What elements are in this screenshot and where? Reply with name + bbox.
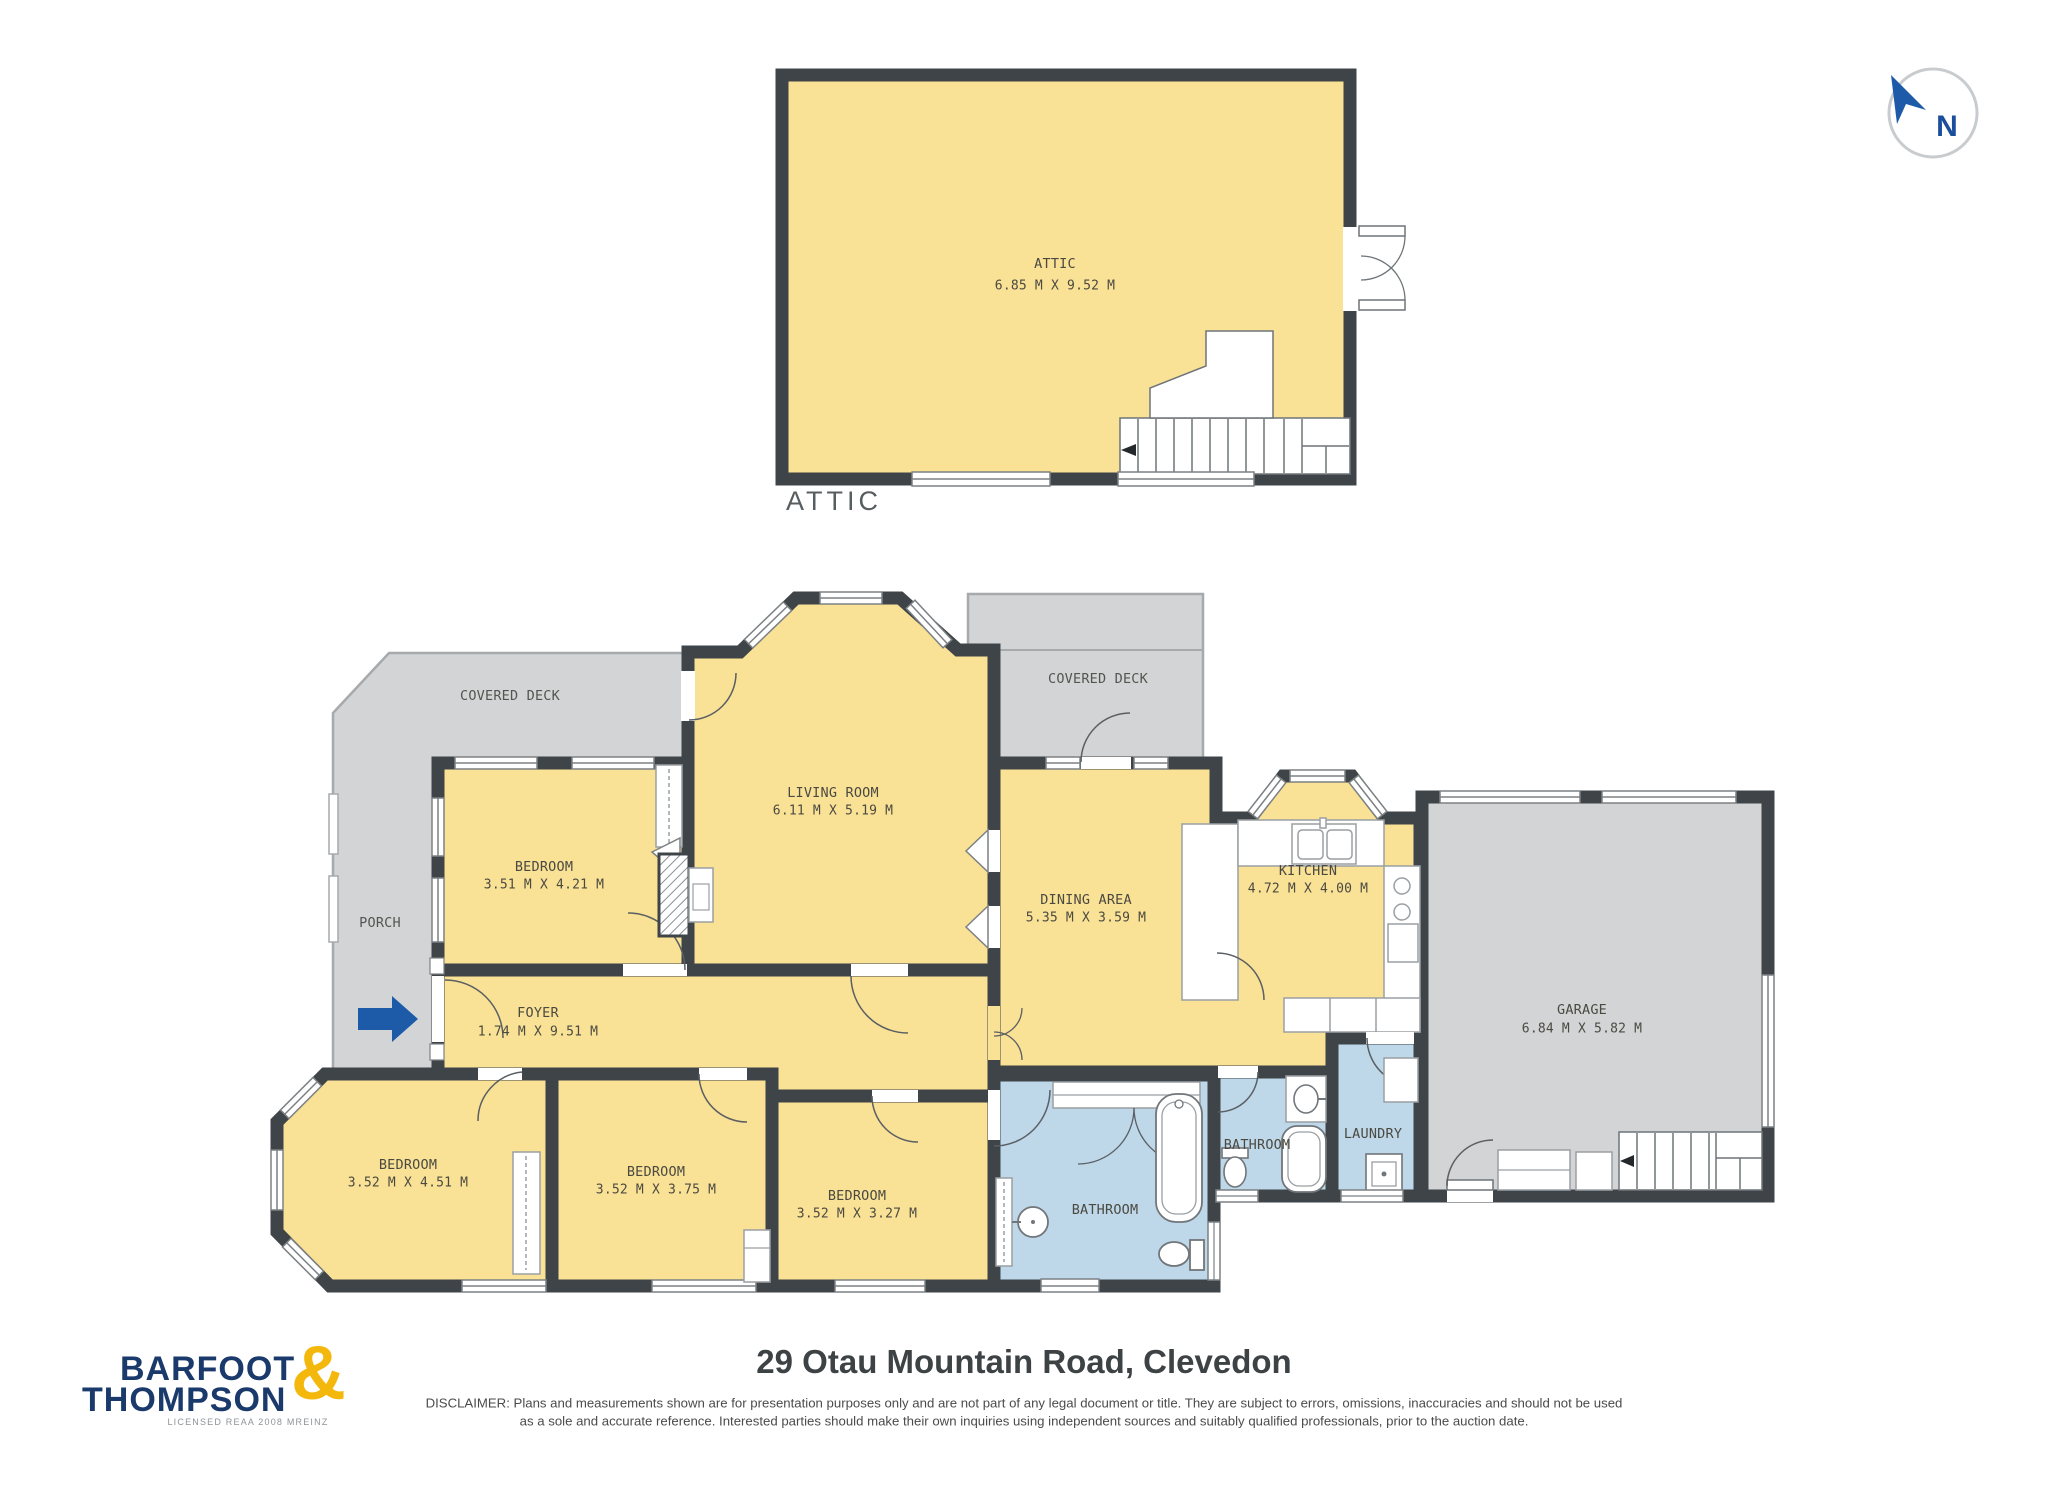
garage-dims: 6.84 M X 5.82 M <box>1522 1022 1642 1037</box>
bedroom-top-dims: 3.51 M X 4.21 M <box>484 878 604 893</box>
attic-double-door <box>1343 226 1405 311</box>
bedroom-right-label: BEDROOM <box>828 1188 886 1204</box>
foyer-label: FOYER <box>517 1005 559 1021</box>
dining-label: DINING AREA <box>1040 892 1132 908</box>
bedroom-middle-area <box>552 1074 772 1286</box>
dining-dims: 5.35 M X 3.59 M <box>1026 911 1146 926</box>
north-label: N <box>1936 110 1958 144</box>
attic-caption: ATTIC <box>786 486 882 517</box>
foyer-dims: 1.74 M X 9.51 M <box>478 1025 598 1040</box>
covered-deck-right-label: COVERED DECK <box>1048 671 1148 687</box>
kitchen-label: KITCHEN <box>1279 863 1337 879</box>
disclaimer-line-1: DISCLAIMER: Plans and measurements shown… <box>426 1396 1623 1411</box>
covered-deck-left-label: COVERED DECK <box>460 688 560 704</box>
attic-room-label: ATTIC <box>1034 256 1076 272</box>
north-indicator <box>1889 69 1977 157</box>
bedroom-middle-label: BEDROOM <box>627 1164 685 1180</box>
bedroom-left-label: BEDROOM <box>379 1157 437 1173</box>
logo-ampersand-icon: & <box>291 1336 346 1412</box>
bathroom-second-label: BATHROOM <box>1224 1137 1291 1153</box>
logo-thompson: THOMPSON <box>82 1381 286 1420</box>
laundry-label: LAUNDRY <box>1344 1126 1402 1142</box>
floor-plan-drawing <box>0 0 2048 1494</box>
attic-stairs <box>1120 418 1350 474</box>
floor-plan-page: ATTIC 6.85 M X 9.52 M ATTIC COVERED DECK… <box>0 0 2048 1494</box>
living-room-area <box>688 598 994 970</box>
disclaimer-line-2: as a sole and accurate reference. Intere… <box>520 1414 1529 1429</box>
bedroom-right-dims: 3.52 M X 3.27 M <box>797 1207 917 1222</box>
attic-room-dims: 6.85 M X 9.52 M <box>995 279 1115 294</box>
page-title: 29 Otau Mountain Road, Clevedon <box>756 1343 1291 1381</box>
garage-stairs <box>1619 1132 1762 1190</box>
living-room-label: LIVING ROOM <box>787 785 879 801</box>
bathroom-main-label: BATHROOM <box>1072 1202 1139 1218</box>
living-room-dims: 6.11 M X 5.19 M <box>773 804 893 819</box>
garage-label: GARAGE <box>1557 1002 1607 1018</box>
logo-tagline: LICENSED REAA 2008 MREINZ <box>167 1417 328 1427</box>
bedroom-middle-dims: 3.52 M X 3.75 M <box>596 1183 716 1198</box>
bedroom-left-dims: 3.52 M X 4.51 M <box>348 1176 468 1191</box>
porch-label: PORCH <box>359 915 401 931</box>
kitchen-dims: 4.72 M X 4.00 M <box>1248 882 1368 897</box>
bedroom-top-label: BEDROOM <box>515 859 573 875</box>
